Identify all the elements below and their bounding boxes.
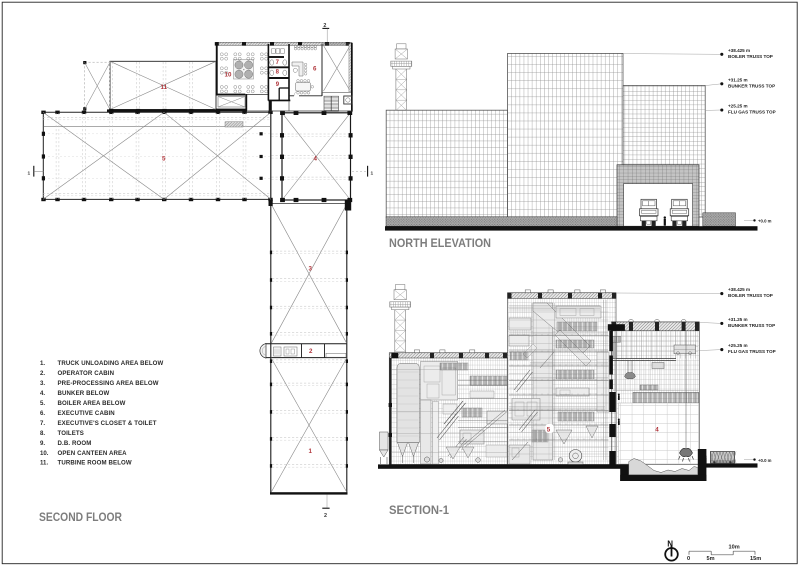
svg-text:10.: 10. — [40, 450, 49, 457]
svg-text:OPERATOR CABIN: OPERATOR CABIN — [58, 370, 115, 377]
svg-text:BUNKER BELOW: BUNKER BELOW — [58, 390, 110, 397]
svg-text:+31.25 m: +31.25 m — [728, 317, 748, 322]
svg-text:TURBINE ROOM BELOW: TURBINE ROOM BELOW — [58, 460, 132, 467]
svg-text:1.: 1. — [40, 360, 45, 367]
svg-text:5m: 5m — [707, 556, 715, 562]
svg-text:11: 11 — [161, 84, 168, 91]
svg-text:2.: 2. — [40, 370, 45, 377]
svg-text:1: 1 — [371, 170, 374, 176]
svg-text:EXECUTIVE'S CLOSET & TOILET: EXECUTIVE'S CLOSET & TOILET — [58, 420, 157, 427]
svg-text:10m: 10m — [729, 544, 740, 550]
svg-text:OPEN CANTEEN AREA: OPEN CANTEEN AREA — [58, 450, 128, 457]
svg-text:BUNKER TRUSS TOP: BUNKER TRUSS TOP — [728, 323, 775, 328]
svg-text:7.: 7. — [40, 420, 45, 427]
svg-text:4: 4 — [655, 426, 659, 433]
svg-text:+0.0 m: +0.0 m — [758, 219, 772, 224]
svg-text:8.: 8. — [40, 430, 45, 437]
svg-text:BUNKER TRUSS TOP: BUNKER TRUSS TOP — [728, 83, 775, 88]
svg-text:4.: 4. — [40, 390, 45, 397]
svg-text:5: 5 — [162, 156, 166, 163]
svg-text:+0.0 m: +0.0 m — [758, 458, 772, 463]
svg-text:15m: 15m — [750, 556, 761, 562]
svg-text:10: 10 — [225, 72, 232, 79]
svg-text:TRUCK UNLOADING AREA BELOW: TRUCK UNLOADING AREA BELOW — [58, 360, 164, 367]
svg-text:EXECUTIVE CABIN: EXECUTIVE CABIN — [58, 410, 115, 417]
svg-text:TOILETS: TOILETS — [58, 430, 84, 437]
svg-text:+25.25 m: +25.25 m — [728, 343, 748, 348]
svg-text:FLU GAS TRUSS TOP: FLU GAS TRUSS TOP — [728, 110, 776, 115]
svg-text:4: 4 — [314, 156, 318, 163]
svg-text:FLU GAS TRUSS TOP: FLU GAS TRUSS TOP — [728, 349, 776, 354]
svg-text:N: N — [667, 540, 673, 549]
svg-text:6: 6 — [313, 66, 317, 73]
svg-text:2: 2 — [324, 513, 327, 519]
svg-text:3: 3 — [309, 266, 313, 273]
svg-text:+25.25 m: +25.25 m — [728, 104, 748, 109]
svg-text:1: 1 — [28, 170, 31, 176]
svg-text:6.: 6. — [40, 410, 45, 417]
svg-text:11.: 11. — [40, 460, 48, 467]
svg-text:PRE-PROCESSING AREA BELOW: PRE-PROCESSING AREA BELOW — [58, 380, 159, 387]
svg-text:2: 2 — [309, 348, 313, 355]
svg-text:+38.425 m: +38.425 m — [728, 287, 750, 292]
svg-text:BOILER AREA BELOW: BOILER AREA BELOW — [58, 400, 126, 407]
svg-text:+38.425 m: +38.425 m — [728, 48, 750, 53]
svg-text:5: 5 — [547, 427, 551, 434]
svg-text:SECTION-1: SECTION-1 — [389, 503, 449, 517]
svg-text:D.B. ROOM: D.B. ROOM — [58, 440, 92, 447]
svg-text:SECOND FLOOR: SECOND FLOOR — [39, 510, 122, 524]
svg-text:3.: 3. — [40, 380, 45, 387]
svg-text:1: 1 — [309, 448, 313, 455]
svg-text:0: 0 — [687, 556, 690, 562]
svg-text:BOILER TRUSS TOP: BOILER TRUSS TOP — [728, 54, 773, 59]
svg-text:5.: 5. — [40, 400, 45, 407]
svg-text:+31.25 m: +31.25 m — [728, 77, 748, 82]
svg-text:BOILER TRUSS TOP: BOILER TRUSS TOP — [728, 293, 773, 298]
svg-text:NORTH ELEVATION: NORTH ELEVATION — [389, 236, 491, 250]
svg-text:9.: 9. — [40, 440, 45, 447]
